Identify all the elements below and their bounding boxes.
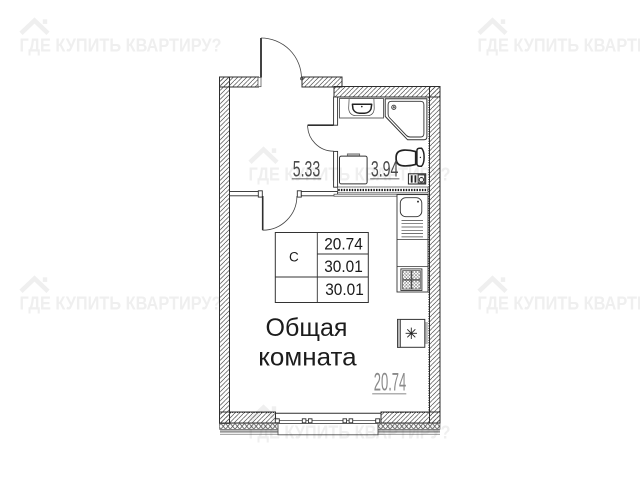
svg-text:ГДЕ КУПИТЬ КВАРТИРУ?: ГДЕ КУПИТЬ КВАРТИРУ?: [249, 165, 451, 185]
svg-text:ГДЕ КУПИТЬ КВАРТИРУ?: ГДЕ КУПИТЬ КВАРТИРУ?: [478, 36, 640, 56]
svg-text:комната: комната: [258, 344, 356, 372]
svg-text:ГДЕ КУПИТЬ КВАРТИРУ?: ГДЕ КУПИТЬ КВАРТИРУ?: [20, 36, 222, 56]
svg-text:20.74: 20.74: [374, 369, 407, 397]
svg-text:ГДЕ КУПИТЬ КВАРТИРУ?: ГДЕ КУПИТЬ КВАРТИРУ?: [20, 294, 222, 314]
svg-text:20.74: 20.74: [324, 235, 363, 254]
svg-text:ГДЕ КУПИТЬ КВАРТИРУ?: ГДЕ КУПИТЬ КВАРТИРУ?: [249, 423, 451, 443]
svg-text:30.01: 30.01: [324, 257, 363, 276]
svg-text:С: С: [289, 250, 299, 265]
svg-text:ГДЕ КУПИТЬ КВАРТИРУ?: ГДЕ КУПИТЬ КВАРТИРУ?: [478, 294, 640, 314]
svg-text:Общая: Общая: [266, 314, 348, 342]
svg-text:30.01: 30.01: [325, 280, 364, 299]
